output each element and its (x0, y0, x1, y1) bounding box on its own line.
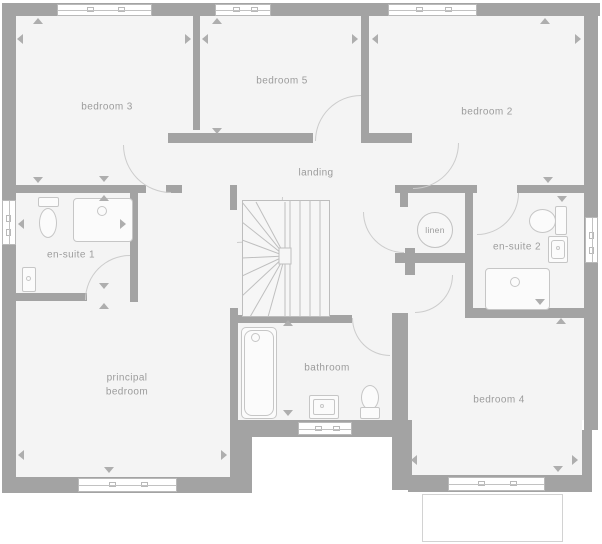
ensuite1-label: en-suite 1 (47, 250, 95, 261)
dimension-marker-icon (535, 299, 545, 305)
dimension-marker-icon (18, 219, 24, 229)
staircase-icon (242, 200, 330, 317)
dimension-marker-icon (212, 18, 222, 24)
dimension-marker-icon (283, 410, 293, 416)
dimension-marker-icon (212, 128, 222, 134)
linen-label: linen (425, 225, 444, 235)
dimension-marker-icon (104, 467, 114, 473)
dimension-marker-icon (411, 455, 417, 465)
ensuite2-label: en-suite 2 (493, 242, 541, 253)
dimension-marker-icon (572, 455, 578, 465)
dimension-marker-icon (221, 450, 227, 460)
dimension-marker-icon (17, 34, 23, 44)
dimension-marker-icon (18, 450, 24, 460)
dimension-marker-icon (557, 196, 567, 202)
dimension-marker-icon (202, 34, 208, 44)
linen-cupboard-circle: linen (417, 212, 453, 248)
dimension-marker-icon (283, 320, 293, 326)
dimension-marker-icon (120, 219, 126, 229)
dimension-marker-icon (185, 34, 191, 44)
bedroom5-label: bedroom 5 (256, 76, 307, 87)
dimension-marker-icon (575, 34, 581, 44)
bathroom-label: bathroom (304, 363, 349, 374)
dimension-marker-icon (33, 177, 43, 183)
dimension-marker-icon (99, 195, 109, 201)
bedroom2-label: bedroom 2 (461, 107, 512, 118)
landing-label: landing (298, 168, 333, 179)
dimension-marker-icon (372, 34, 378, 44)
dimension-marker-icon (352, 34, 358, 44)
dimension-marker-icon (33, 18, 43, 24)
dimension-marker-icon (553, 466, 563, 472)
dimension-marker-icon (540, 18, 550, 24)
principal-bedroom-label: principal bedroom (94, 372, 160, 399)
dimension-marker-icon (99, 283, 109, 289)
bedroom3-label: bedroom 3 (81, 102, 132, 113)
dimension-marker-icon (543, 177, 553, 183)
floor-plan: linen bedroom 3 bedroom 5 bedroom 2 land… (0, 0, 602, 544)
dimension-marker-icon (99, 176, 109, 182)
dimension-marker-icon (99, 303, 109, 309)
bedroom4-label: bedroom 4 (473, 395, 524, 406)
dimension-marker-icon (556, 318, 566, 324)
